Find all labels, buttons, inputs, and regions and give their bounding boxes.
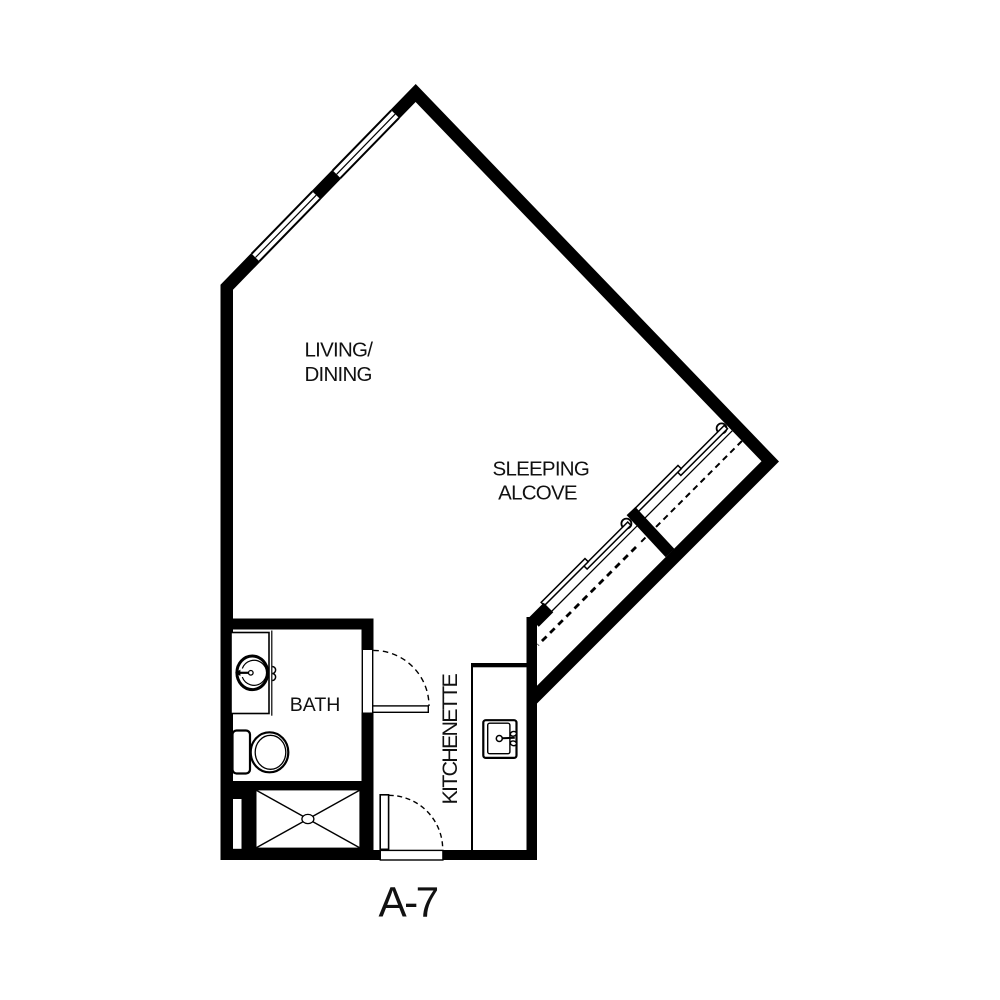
svg-text:LIVING/: LIVING/ — [305, 339, 374, 362]
svg-text:DINING: DINING — [305, 363, 372, 386]
svg-text:KITCHENETTE: KITCHENETTE — [438, 674, 462, 805]
svg-text:A-7: A-7 — [378, 879, 437, 926]
svg-text:BATH: BATH — [290, 694, 341, 716]
svg-text:ALCOVE: ALCOVE — [498, 482, 577, 505]
svg-text:SLEEPING: SLEEPING — [493, 458, 590, 481]
